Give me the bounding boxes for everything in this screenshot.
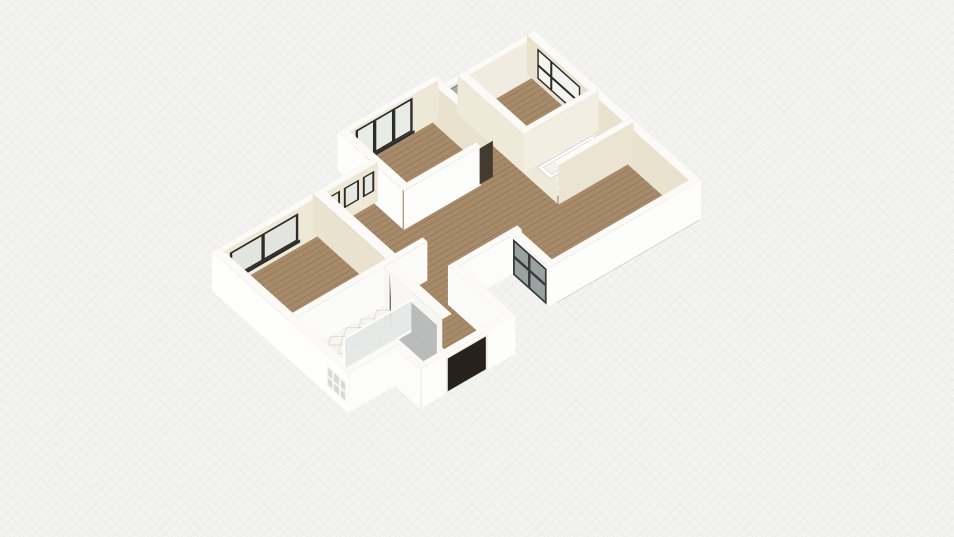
floorplan-3d-viewport[interactable] — [0, 0, 954, 537]
floorplan-3d-render — [0, 0, 954, 537]
